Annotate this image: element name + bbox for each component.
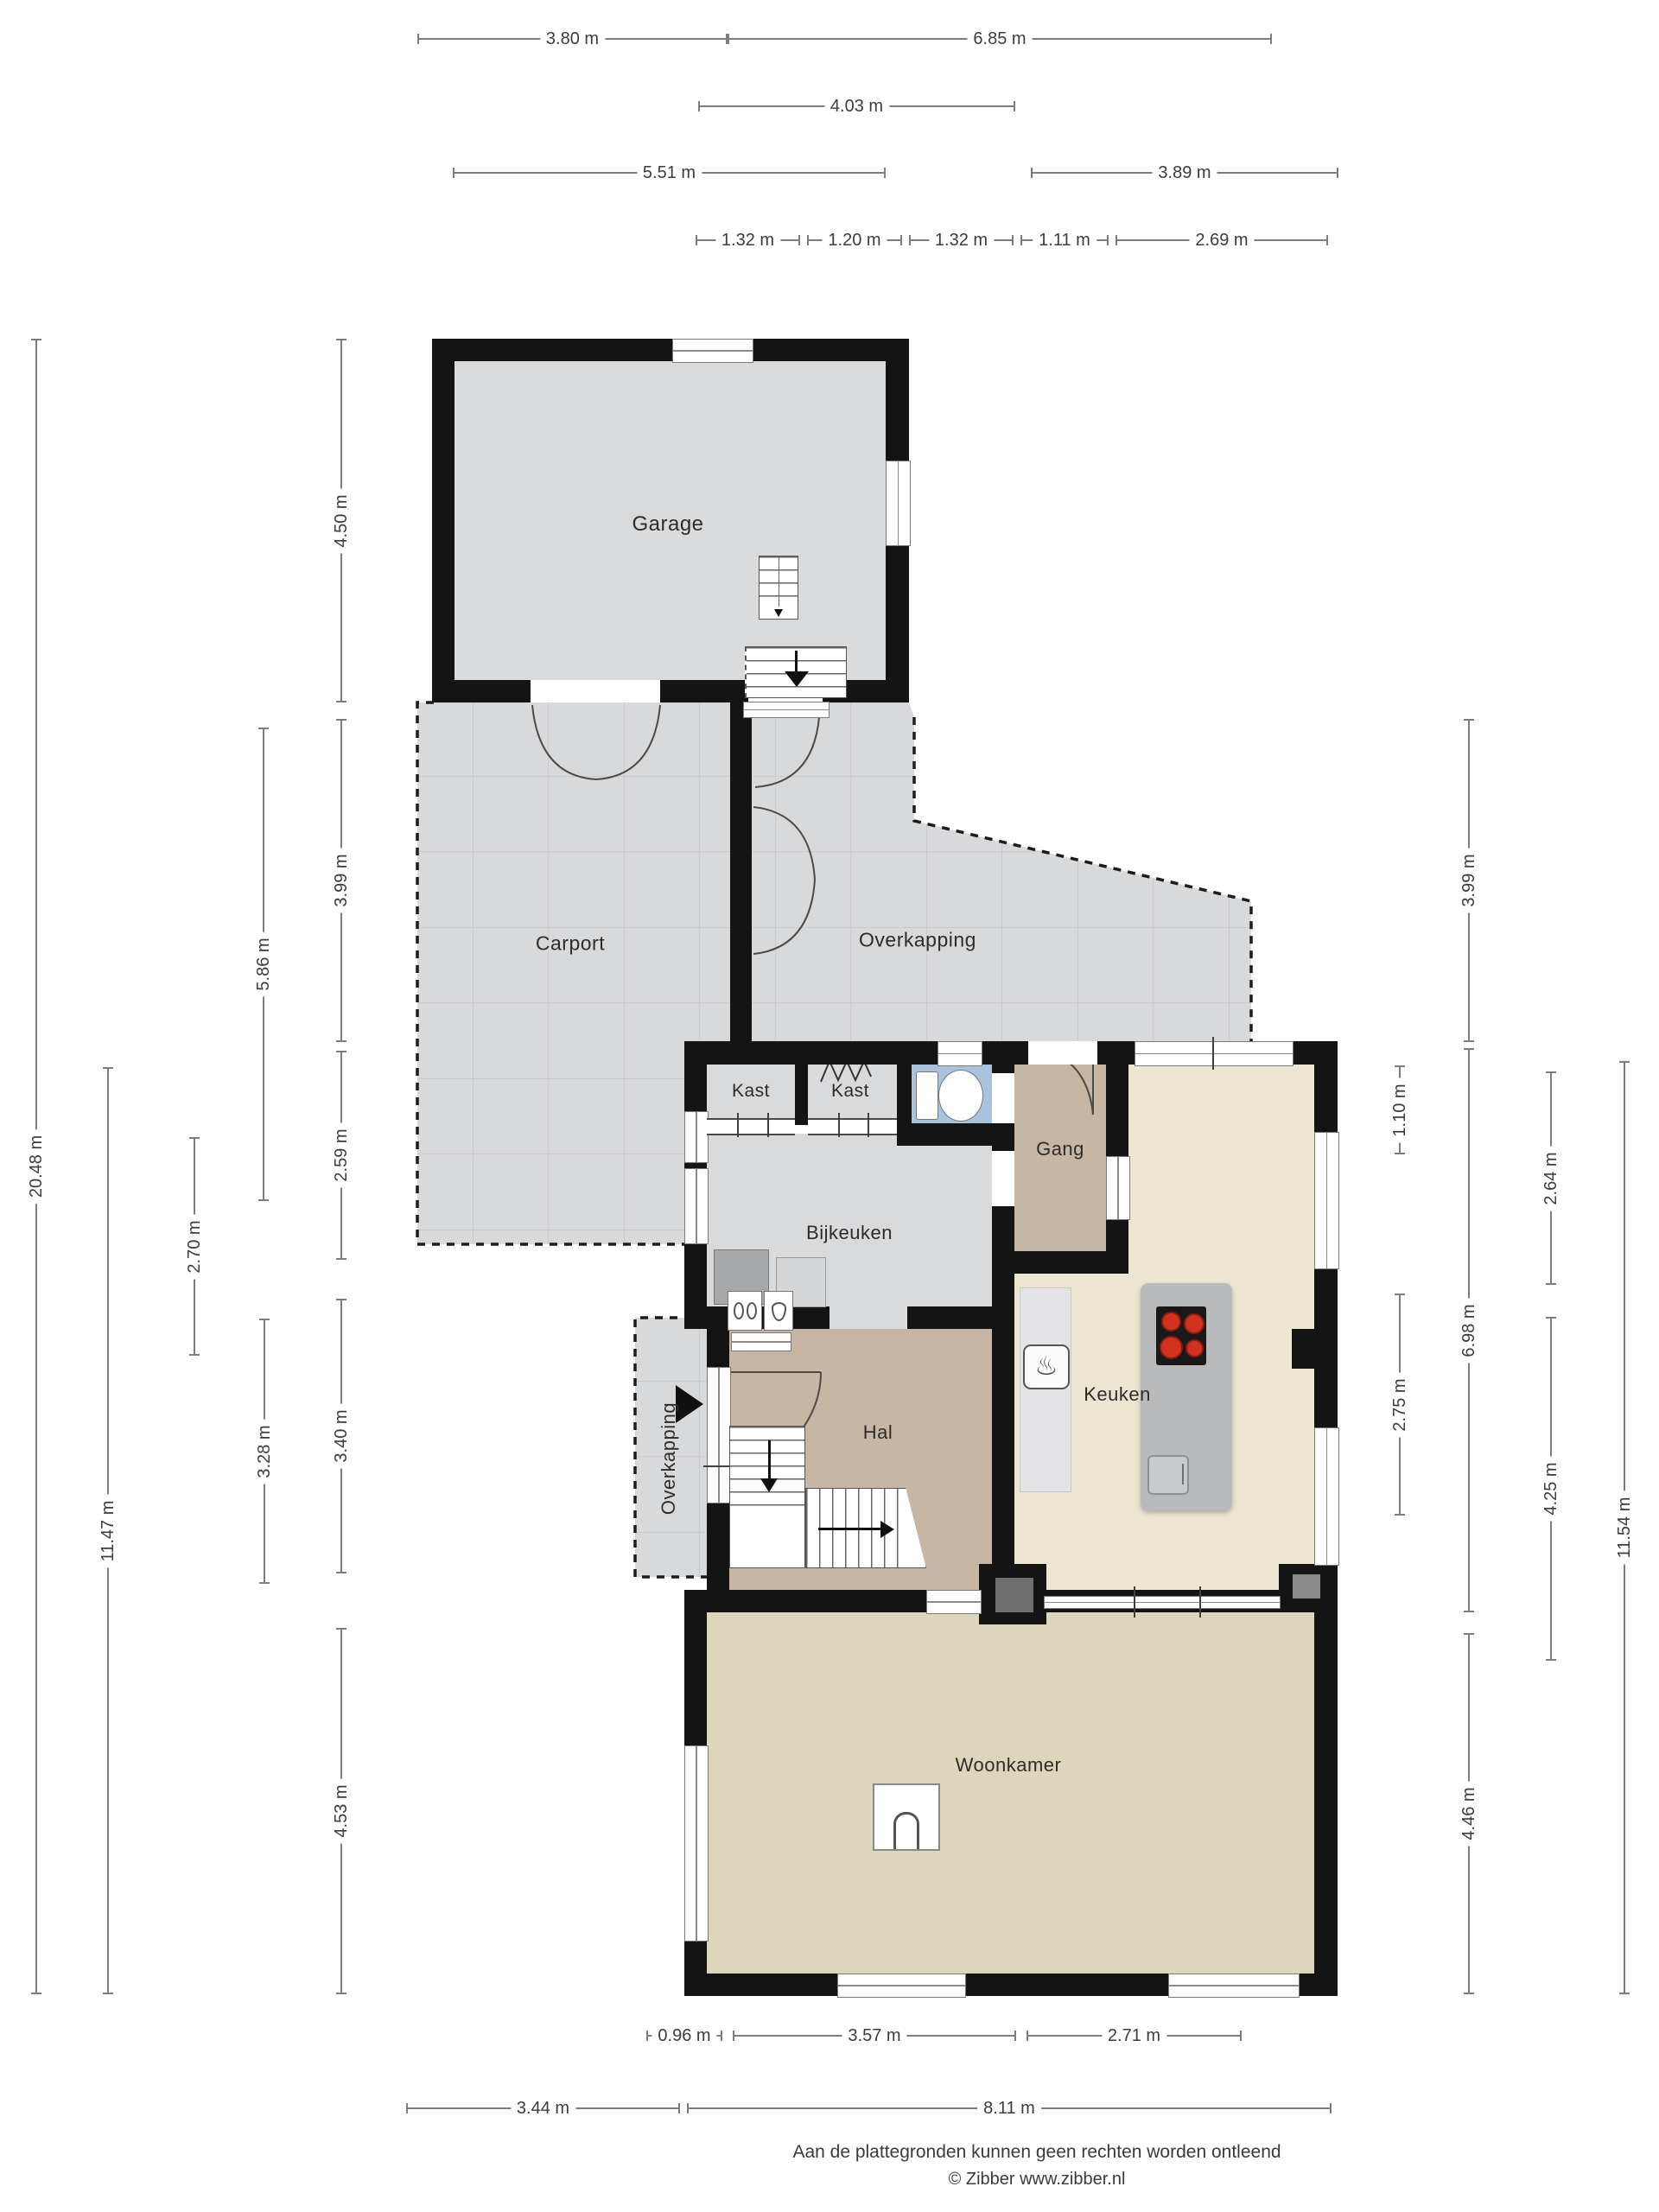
living-window-bottom-left: [837, 1974, 966, 1998]
dimension-vertical: 5.86 m: [254, 728, 273, 1201]
overkapping-tiles: [752, 702, 1251, 1041]
pillar-inset: [1293, 1574, 1320, 1599]
utility-hallway-door-opening: [992, 1151, 1014, 1206]
kitchen-window-top-mullion: [1212, 1037, 1214, 1070]
utility-window-left-1: [684, 1111, 709, 1163]
dimension-horizontal: 3.89 m: [1031, 163, 1338, 182]
room-label-carport: Carport: [536, 932, 605, 956]
kitchen-living-window-strip: [1044, 1596, 1281, 1609]
utility-passage-floor: [829, 1306, 907, 1332]
dimension-vertical: 2.75 m: [1390, 1294, 1409, 1516]
room-label-keuken: Keuken: [1084, 1383, 1151, 1406]
dimension-horizontal: 1.20 m: [807, 231, 902, 250]
dimension-vertical: 2.70 m: [185, 1137, 204, 1356]
garage-small-staircase: [759, 556, 798, 620]
dimension-horizontal: 2.69 m: [1116, 231, 1328, 250]
hallway-entry-door-opening: [1028, 1041, 1097, 1065]
hall-staircase-upper-flight: [729, 1426, 805, 1568]
dimension-vertical: 3.40 m: [332, 1299, 351, 1573]
dimension-horizontal: 2.71 m: [1027, 2026, 1242, 2045]
dimension-horizontal: 1.11 m: [1020, 231, 1109, 250]
strip-window-tick-2: [1199, 1586, 1201, 1618]
front-door-frame: [707, 1367, 731, 1503]
dimension-horizontal: 3.57 m: [733, 2026, 1016, 2045]
utility-wall-bottom-right: [907, 1306, 992, 1329]
dimension-horizontal: 5.51 m: [453, 163, 886, 182]
floorplan-base-layer: [0, 0, 1659, 2212]
closet-toilet-divider-wall: [897, 1065, 912, 1125]
boiler-icon: [764, 1291, 793, 1331]
garage-wall-top: [432, 339, 909, 361]
kitchen-wall-stub: [1292, 1329, 1316, 1369]
living-window-bottom-right: [1168, 1974, 1300, 1998]
carport-tiles: [417, 702, 730, 1244]
kitchen-window-right-lower: [1314, 1427, 1339, 1566]
garage-threshold: [743, 702, 829, 718]
dimension-vertical: 1.10 m: [1390, 1065, 1409, 1154]
closet2-sliding-door: [808, 1118, 897, 1135]
hall-staircase-lower-flight: [805, 1488, 926, 1568]
toilet-bowl-icon: [938, 1070, 983, 1122]
dimension-horizontal: 0.96 m: [646, 2026, 722, 2045]
dimension-vertical: 4.53 m: [332, 1628, 351, 1994]
footer-credit: © Zibber www.zibber.nl: [743, 2170, 1331, 2190]
room-label-kast-2: Kast: [831, 1081, 869, 1102]
closet2-slider-tick2: [868, 1113, 869, 1137]
dimension-horizontal: 8.11 m: [687, 2099, 1332, 2118]
closet-divider-wall: [795, 1065, 808, 1125]
hallway-wall-bottom: [992, 1251, 1128, 1274]
dimension-horizontal: 3.44 m: [406, 2099, 680, 2118]
utility-window-top: [938, 1041, 982, 1066]
garage-window-top: [672, 339, 753, 363]
dimension-vertical: 2.64 m: [1541, 1071, 1560, 1285]
oven-icon: [1147, 1455, 1189, 1495]
chimney-inset: [995, 1578, 1033, 1612]
closet2-slider-tick: [838, 1113, 840, 1137]
dimension-vertical: 4.25 m: [1541, 1317, 1560, 1661]
dimension-vertical: 20.48 m: [27, 339, 46, 1994]
dimension-vertical: 6.98 m: [1459, 1048, 1478, 1612]
carport-overkapping-divider-wall: [730, 702, 752, 1048]
room-label-overkapping: Overkapping: [859, 929, 976, 952]
room-label-bijkeuken: Bijkeuken: [806, 1222, 893, 1244]
sink-unit-icon: [728, 1291, 762, 1331]
room-label-overkapping-entry: Overkapping: [658, 1402, 680, 1515]
living-floor: [707, 1612, 1314, 1974]
front-door-frame-joint: [703, 1465, 733, 1467]
room-label-hal: Hal: [863, 1421, 893, 1444]
closet1-slider-tick: [737, 1113, 739, 1137]
dimension-horizontal: 1.32 m: [909, 231, 1014, 250]
hall-living-window: [926, 1590, 982, 1614]
dimension-vertical: 2.59 m: [332, 1051, 351, 1260]
living-window-left: [684, 1745, 709, 1942]
dimension-vertical: 4.46 m: [1459, 1633, 1478, 1994]
dimension-horizontal: 3.80 m: [417, 29, 728, 48]
dimension-horizontal: 1.32 m: [696, 231, 800, 250]
utility-window-left-2: [684, 1168, 709, 1244]
kitchen-window-right-upper: [1314, 1132, 1339, 1269]
closet1-slider-tick2: [767, 1113, 769, 1137]
dimension-vertical: 3.99 m: [1459, 719, 1478, 1042]
dimension-horizontal: 6.85 m: [728, 29, 1272, 48]
garage-wall-left: [432, 339, 454, 702]
dimension-horizontal: 4.03 m: [698, 97, 1015, 116]
toilet-tank-icon: [916, 1071, 938, 1120]
dimension-vertical: 11.54 m: [1615, 1061, 1634, 1994]
closet1-sliding-door: [707, 1118, 795, 1135]
footer-disclaimer: Aan de plattegronden kunnen geen rechten…: [743, 2142, 1331, 2163]
room-label-woonkamer: Woonkamer: [956, 1754, 1062, 1777]
toilet-door-opening: [992, 1073, 1014, 1123]
dimension-vertical: 11.47 m: [99, 1067, 118, 1994]
strip-window-tick-1: [1134, 1586, 1135, 1618]
dimension-vertical: 3.99 m: [332, 719, 351, 1042]
kitchen-counter-strip: [1020, 1287, 1071, 1492]
kitchen-floor-upper: [1128, 1065, 1314, 1277]
room-label-garage: Garage: [632, 512, 703, 537]
hallway-kitchen-window: [1106, 1156, 1130, 1220]
garage-entry-steps: [745, 646, 847, 698]
kitchen-window-top: [1135, 1041, 1294, 1066]
dimension-vertical: 3.28 m: [255, 1319, 274, 1584]
kitchen-radiator-icon: ♨: [1023, 1344, 1070, 1389]
wood-stove-icon: [873, 1783, 940, 1851]
hall-niche-counter: [731, 1332, 791, 1351]
cooktop-icon: [1156, 1306, 1206, 1365]
dimension-vertical: 4.50 m: [332, 339, 351, 702]
room-label-gang: Gang: [1036, 1138, 1084, 1160]
floorplan-canvas: ♨ GarageCarportOverkappingKastKastGangBi…: [0, 0, 1659, 2212]
garage-double-door-opening: [531, 680, 660, 702]
utility-kitchen-divider-wall: [992, 1065, 1014, 1590]
garage-window-right: [886, 461, 911, 546]
room-label-kast-1: Kast: [732, 1081, 770, 1102]
